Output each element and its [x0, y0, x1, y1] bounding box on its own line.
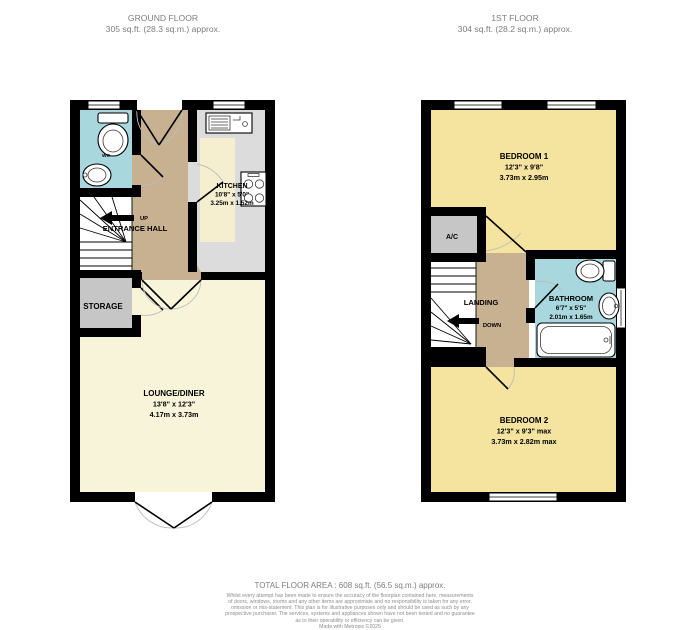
- front-door-opening: [137, 100, 182, 110]
- wall-hall-lounge-left: [132, 272, 142, 280]
- window-wc: [88, 101, 120, 109]
- wall-right: [265, 100, 275, 502]
- wall-wc-bottom: [80, 188, 141, 197]
- toilet-icon-bathroom: [576, 260, 615, 282]
- window-bedroom1-left: [454, 101, 502, 109]
- toilet-icon-wc: [98, 113, 128, 156]
- wall-kitchen-left-upper: [188, 110, 197, 162]
- wall-bathroom-left-lower: [526, 308, 535, 323]
- wc-label: WC: [102, 153, 111, 159]
- wall-wc-right-upper: [132, 110, 141, 155]
- ground-floor-plan: WC UP ENTRANCE HALL KITCHEN 10'8" x 5'0"…: [70, 100, 275, 535]
- wall-left-1f: [421, 100, 431, 502]
- ground-stairs-area: [80, 197, 132, 270]
- ground-floor-area: 305 sq.ft. (28.3 sq.m.) approx.: [60, 24, 266, 35]
- footer: TOTAL FLOOR AREA : 608 sq.ft. (56.5 sq.m…: [0, 581, 700, 630]
- lounge-dims-imperial: 13'8" x 12'3": [153, 400, 195, 409]
- sink-icon-bathroom: [599, 293, 619, 319]
- bathroom-label: BATHROOM: [549, 294, 593, 303]
- bathtub-icon: [537, 323, 615, 357]
- disclaimer: Whilst every attempt has been made to en…: [0, 593, 700, 630]
- landing-label: LANDING: [464, 298, 499, 307]
- wall-storage-bottom: [80, 328, 141, 337]
- total-floor-area: TOTAL FLOOR AREA : 608 sq.ft. (56.5 sq.m…: [0, 581, 700, 590]
- bedroom1-dims-metric: 3.73m x 2.95m: [500, 173, 549, 182]
- kitchen-floor: [200, 138, 235, 242]
- bedroom2-dims-imperial: 12'3" x 9'3" max: [497, 427, 552, 436]
- wall-ac-right: [477, 207, 486, 262]
- entrance-hall-label: ENTRANCE HALL: [103, 224, 168, 233]
- kitchen-dims-metric: 3.25m x 1.52m: [210, 200, 254, 207]
- bathroom-dims-metric: 2.01m x 1.65m: [549, 314, 593, 321]
- first-floor-header: 1ST FLOOR 304 sq.ft. (28.2 sq.m.) approx…: [412, 13, 618, 35]
- up-label: UP: [140, 216, 148, 222]
- first-floor-plan: BEDROOM 1 12'3" x 9'8" 3.73m x 2.95m A/C…: [421, 100, 626, 535]
- bedroom2-label: BEDROOM 2: [500, 416, 549, 425]
- wall-stairs-bottom: [80, 270, 141, 278]
- sink-icon-wc: [83, 164, 111, 186]
- wall-bathroom-left-upper: [526, 259, 535, 280]
- kitchen-label: KITCHEN: [216, 183, 247, 190]
- bathroom-dims-imperial: 6'7" x 5'5": [556, 305, 586, 312]
- ground-floor-title: GROUND FLOOR: [60, 13, 266, 24]
- bedroom1-dims-imperial: 12'3" x 9'8": [505, 163, 543, 172]
- first-floor-area: 304 sq.ft. (28.2 sq.m.) approx.: [412, 24, 618, 35]
- window-bedroom1-right: [547, 101, 596, 109]
- wall-bathroom-top: [526, 250, 617, 259]
- bedroom1-label: BEDROOM 1: [500, 152, 549, 161]
- kitchen-dims-imperial: 10'8" x 5'0": [215, 192, 249, 199]
- wall-kitchen-bottom: [201, 272, 266, 280]
- window-bedroom2: [489, 493, 557, 501]
- ground-floor-header: GROUND FLOOR 305 sq.ft. (28.3 sq.m.) app…: [60, 13, 266, 35]
- french-door-opening: [135, 492, 212, 502]
- wall-left: [70, 100, 80, 502]
- wall-below-stairs: [431, 347, 486, 367]
- storage-label: STORAGE: [83, 302, 123, 311]
- lounge-label: LOUNGE/DINER: [143, 389, 205, 398]
- kitchen-sink-icon: [206, 113, 252, 133]
- wall-stairs-top: [431, 253, 477, 262]
- wall-bedroom2-top: [514, 358, 617, 367]
- lounge-dims-metric: 4.17m x 3.73m: [150, 410, 199, 419]
- first-floor-title: 1ST FLOOR: [412, 13, 618, 24]
- down-label: DOWN: [483, 323, 501, 329]
- wall-kitchen-left-lower: [188, 202, 197, 272]
- ac-label: A/C: [446, 234, 458, 241]
- window-kitchen: [213, 101, 245, 109]
- bedroom2-dims-metric: 3.73m x 2.82m max: [491, 437, 556, 446]
